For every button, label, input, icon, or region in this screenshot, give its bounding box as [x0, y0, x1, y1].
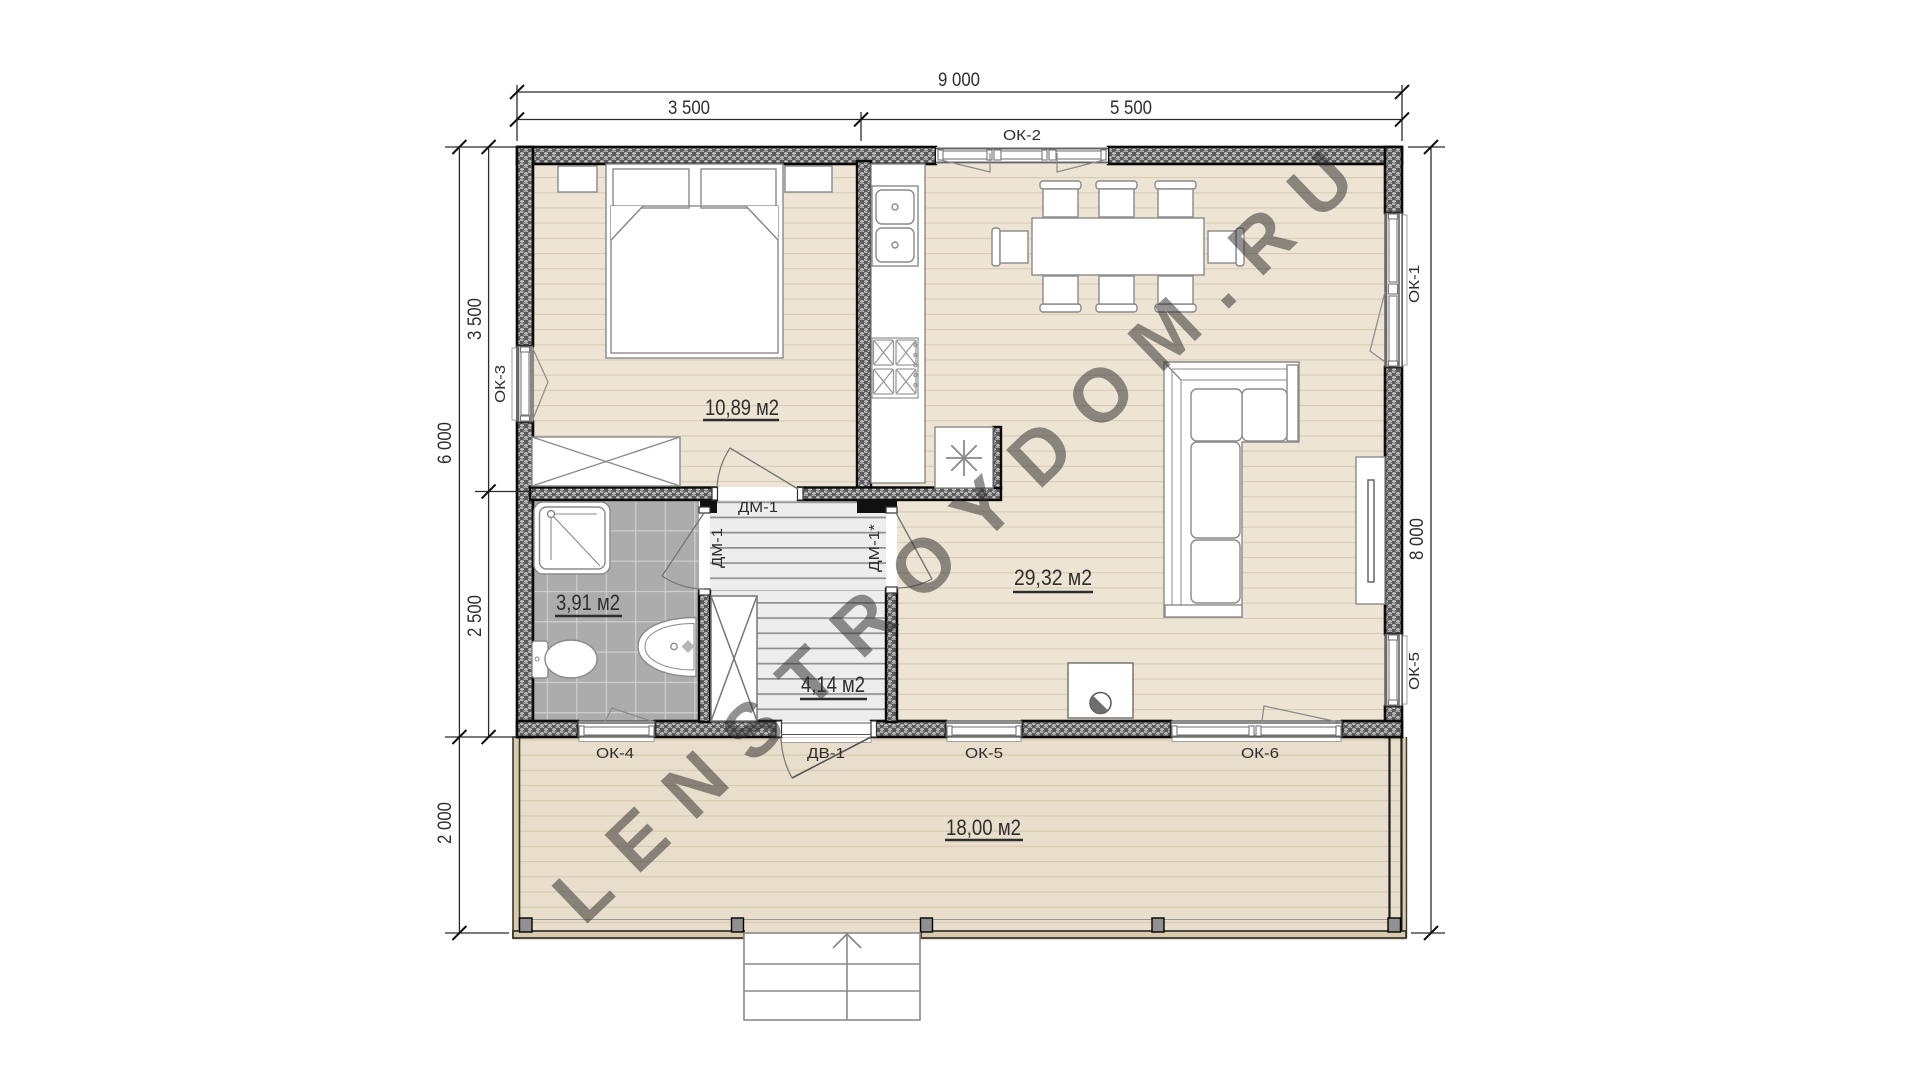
svg-text:ОК-3: ОК-3	[492, 365, 509, 403]
svg-text:ОК-2: ОК-2	[1003, 127, 1041, 144]
svg-text:6 000: 6 000	[435, 422, 456, 464]
svg-text:ОК-5: ОК-5	[1406, 652, 1423, 690]
svg-text:5 500: 5 500	[1110, 98, 1152, 119]
svg-text:ОК-1: ОК-1	[1406, 265, 1423, 303]
svg-text:9 000: 9 000	[938, 70, 980, 91]
svg-text:ДВ-1: ДВ-1	[807, 745, 845, 762]
svg-text:ДМ-1: ДМ-1	[738, 499, 778, 516]
svg-text:ДМ-1: ДМ-1	[709, 528, 726, 568]
svg-text:ОК-6: ОК-6	[1241, 745, 1279, 762]
svg-text:ОК-5: ОК-5	[965, 745, 1003, 762]
svg-text:3 500: 3 500	[465, 298, 486, 340]
svg-text:2 500: 2 500	[465, 595, 486, 637]
svg-text:3 500: 3 500	[668, 98, 710, 119]
svg-text:2 000: 2 000	[435, 802, 456, 844]
svg-text:ОК-4: ОК-4	[596, 745, 634, 762]
svg-text:29,32 м2: 29,32 м2	[1014, 565, 1092, 590]
svg-text:10,89 м2: 10,89 м2	[705, 395, 779, 420]
svg-text:18,00 м2: 18,00 м2	[946, 815, 1021, 840]
svg-text:3,91 м2: 3,91 м2	[556, 590, 620, 615]
svg-text:8 000: 8 000	[1407, 518, 1428, 560]
